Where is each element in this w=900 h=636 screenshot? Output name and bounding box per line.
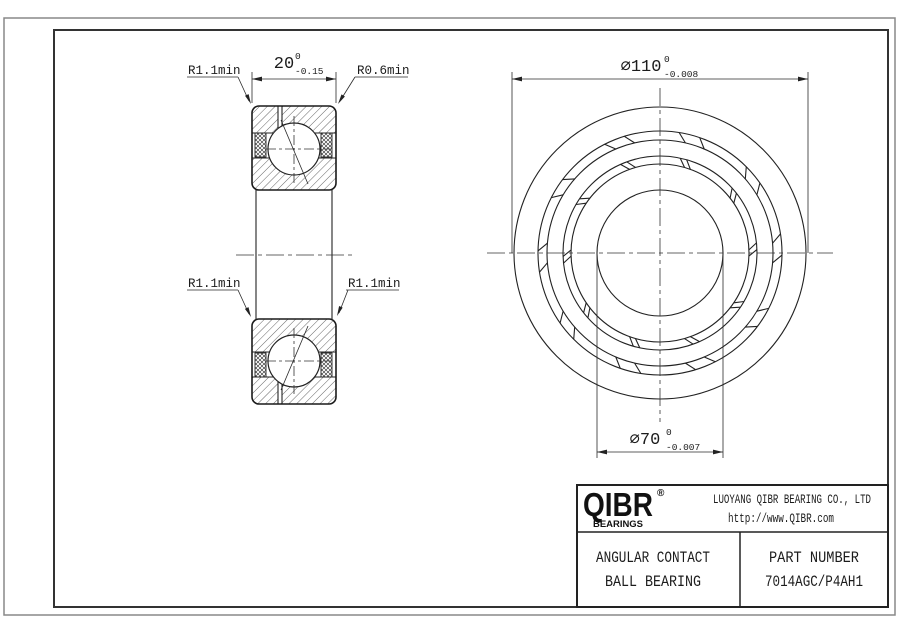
cage-pocket-edge bbox=[773, 255, 782, 263]
cage-pocket-edge bbox=[588, 308, 590, 318]
cage-section bbox=[255, 133, 266, 157]
cage-pocket-edge bbox=[563, 179, 575, 180]
cage-pocket-edge bbox=[564, 256, 572, 263]
cage-pocket-edge bbox=[627, 162, 636, 168]
cage-pocket-edge bbox=[734, 193, 737, 203]
width-dim-tol-lower: -0.15 bbox=[295, 66, 324, 77]
cage-pocket-edge bbox=[730, 307, 740, 308]
cage-pocket-edge bbox=[745, 326, 757, 327]
arrowhead bbox=[512, 77, 522, 82]
front-view: ⌀110 0 -0.008 ⌀70 0 -0.007 bbox=[487, 54, 833, 458]
arrowhead bbox=[798, 77, 808, 82]
part-number-label: PART NUMBER bbox=[769, 549, 859, 567]
arrowhead bbox=[597, 450, 607, 455]
section-bottom-half bbox=[252, 319, 336, 404]
cage-pocket-edge bbox=[745, 167, 746, 179]
cage-pocket-edge bbox=[560, 311, 563, 323]
radius-label-top-left: R1.1min bbox=[188, 64, 241, 78]
leader-arrowhead bbox=[245, 307, 251, 317]
cross-section-view: 20 0 -0.15 R1.1min R0.6min R1.1min R1.1m… bbox=[187, 51, 410, 404]
radius-label-mid-right: R1.1min bbox=[348, 277, 401, 291]
cage-pocket-edge bbox=[685, 363, 695, 370]
cage-pocket-edge bbox=[574, 327, 575, 339]
part-number-value: 7014AGC/P4AH1 bbox=[765, 573, 863, 591]
width-dim-value: 20 bbox=[274, 55, 294, 74]
radius-label-mid-left: R1.1min bbox=[188, 277, 241, 291]
cage-section bbox=[321, 133, 332, 157]
leader-arrowhead bbox=[337, 306, 343, 316]
arrowhead bbox=[326, 77, 336, 82]
registered-trademark-mark: ® bbox=[657, 488, 665, 499]
cage-pocket-edge bbox=[576, 203, 586, 204]
arrowhead bbox=[713, 450, 723, 455]
drawing-canvas: 20 0 -0.15 R1.1min R0.6min R1.1min R1.1m… bbox=[0, 0, 900, 636]
brand-logo: QIBR bbox=[583, 486, 653, 523]
engineering-drawing-sheet: 20 0 -0.15 R1.1min R0.6min R1.1min R1.1m… bbox=[0, 0, 900, 636]
cage-pocket-edge bbox=[621, 164, 630, 169]
bore-dim-tol-lower: -0.007 bbox=[666, 442, 700, 453]
product-type-line1: ANGULAR CONTACT bbox=[596, 549, 710, 567]
bore-dim-value: ⌀70 bbox=[630, 431, 661, 450]
cage-pocket-edge bbox=[773, 234, 781, 243]
width-dim-tol-upper: 0 bbox=[295, 51, 301, 62]
leader-arrowhead bbox=[245, 94, 251, 104]
cage-pocket-edge bbox=[538, 243, 547, 251]
width-dimension: 20 0 -0.15 bbox=[252, 51, 336, 103]
od-dim-tol-lower: -0.008 bbox=[664, 69, 699, 80]
company-name: LUOYANG QIBR BEARING CO., LTD bbox=[713, 493, 871, 507]
cage-pocket-edge bbox=[605, 144, 616, 149]
cage-pocket-edge bbox=[757, 183, 760, 195]
cage-section bbox=[255, 353, 266, 377]
brand-logo-subtext: BEARINGS bbox=[593, 519, 643, 529]
bore-dim-tol-upper: 0 bbox=[666, 427, 672, 438]
arrowhead bbox=[252, 77, 262, 82]
cage-pocket-edge bbox=[730, 188, 732, 198]
title-block: QIBR ® BEARINGS LUOYANG QIBR BEARING CO.… bbox=[577, 485, 888, 607]
od-dim-value: ⌀110 bbox=[621, 58, 662, 77]
cage-pocket-edge bbox=[690, 337, 699, 342]
radius-label-top-right: R0.6min bbox=[357, 64, 410, 78]
cage-pocket-edge bbox=[734, 302, 744, 303]
product-type-line2: BALL BEARING bbox=[605, 573, 701, 591]
cage-pocket-edge bbox=[749, 243, 757, 250]
cage-pocket-edge bbox=[584, 303, 587, 313]
leader-arrowhead bbox=[338, 94, 345, 104]
cage-pocket-edge bbox=[685, 339, 694, 345]
cage-pocket-edge bbox=[624, 136, 634, 143]
company-website: http://www.QIBR.com bbox=[728, 512, 834, 526]
od-dim-tol-upper: 0 bbox=[664, 54, 670, 65]
cage-section bbox=[321, 353, 332, 377]
section-top-half bbox=[252, 106, 336, 190]
cage-pocket-edge bbox=[704, 357, 715, 362]
cage-pocket-edge bbox=[540, 263, 548, 272]
cage-pocket-edge bbox=[580, 198, 590, 199]
